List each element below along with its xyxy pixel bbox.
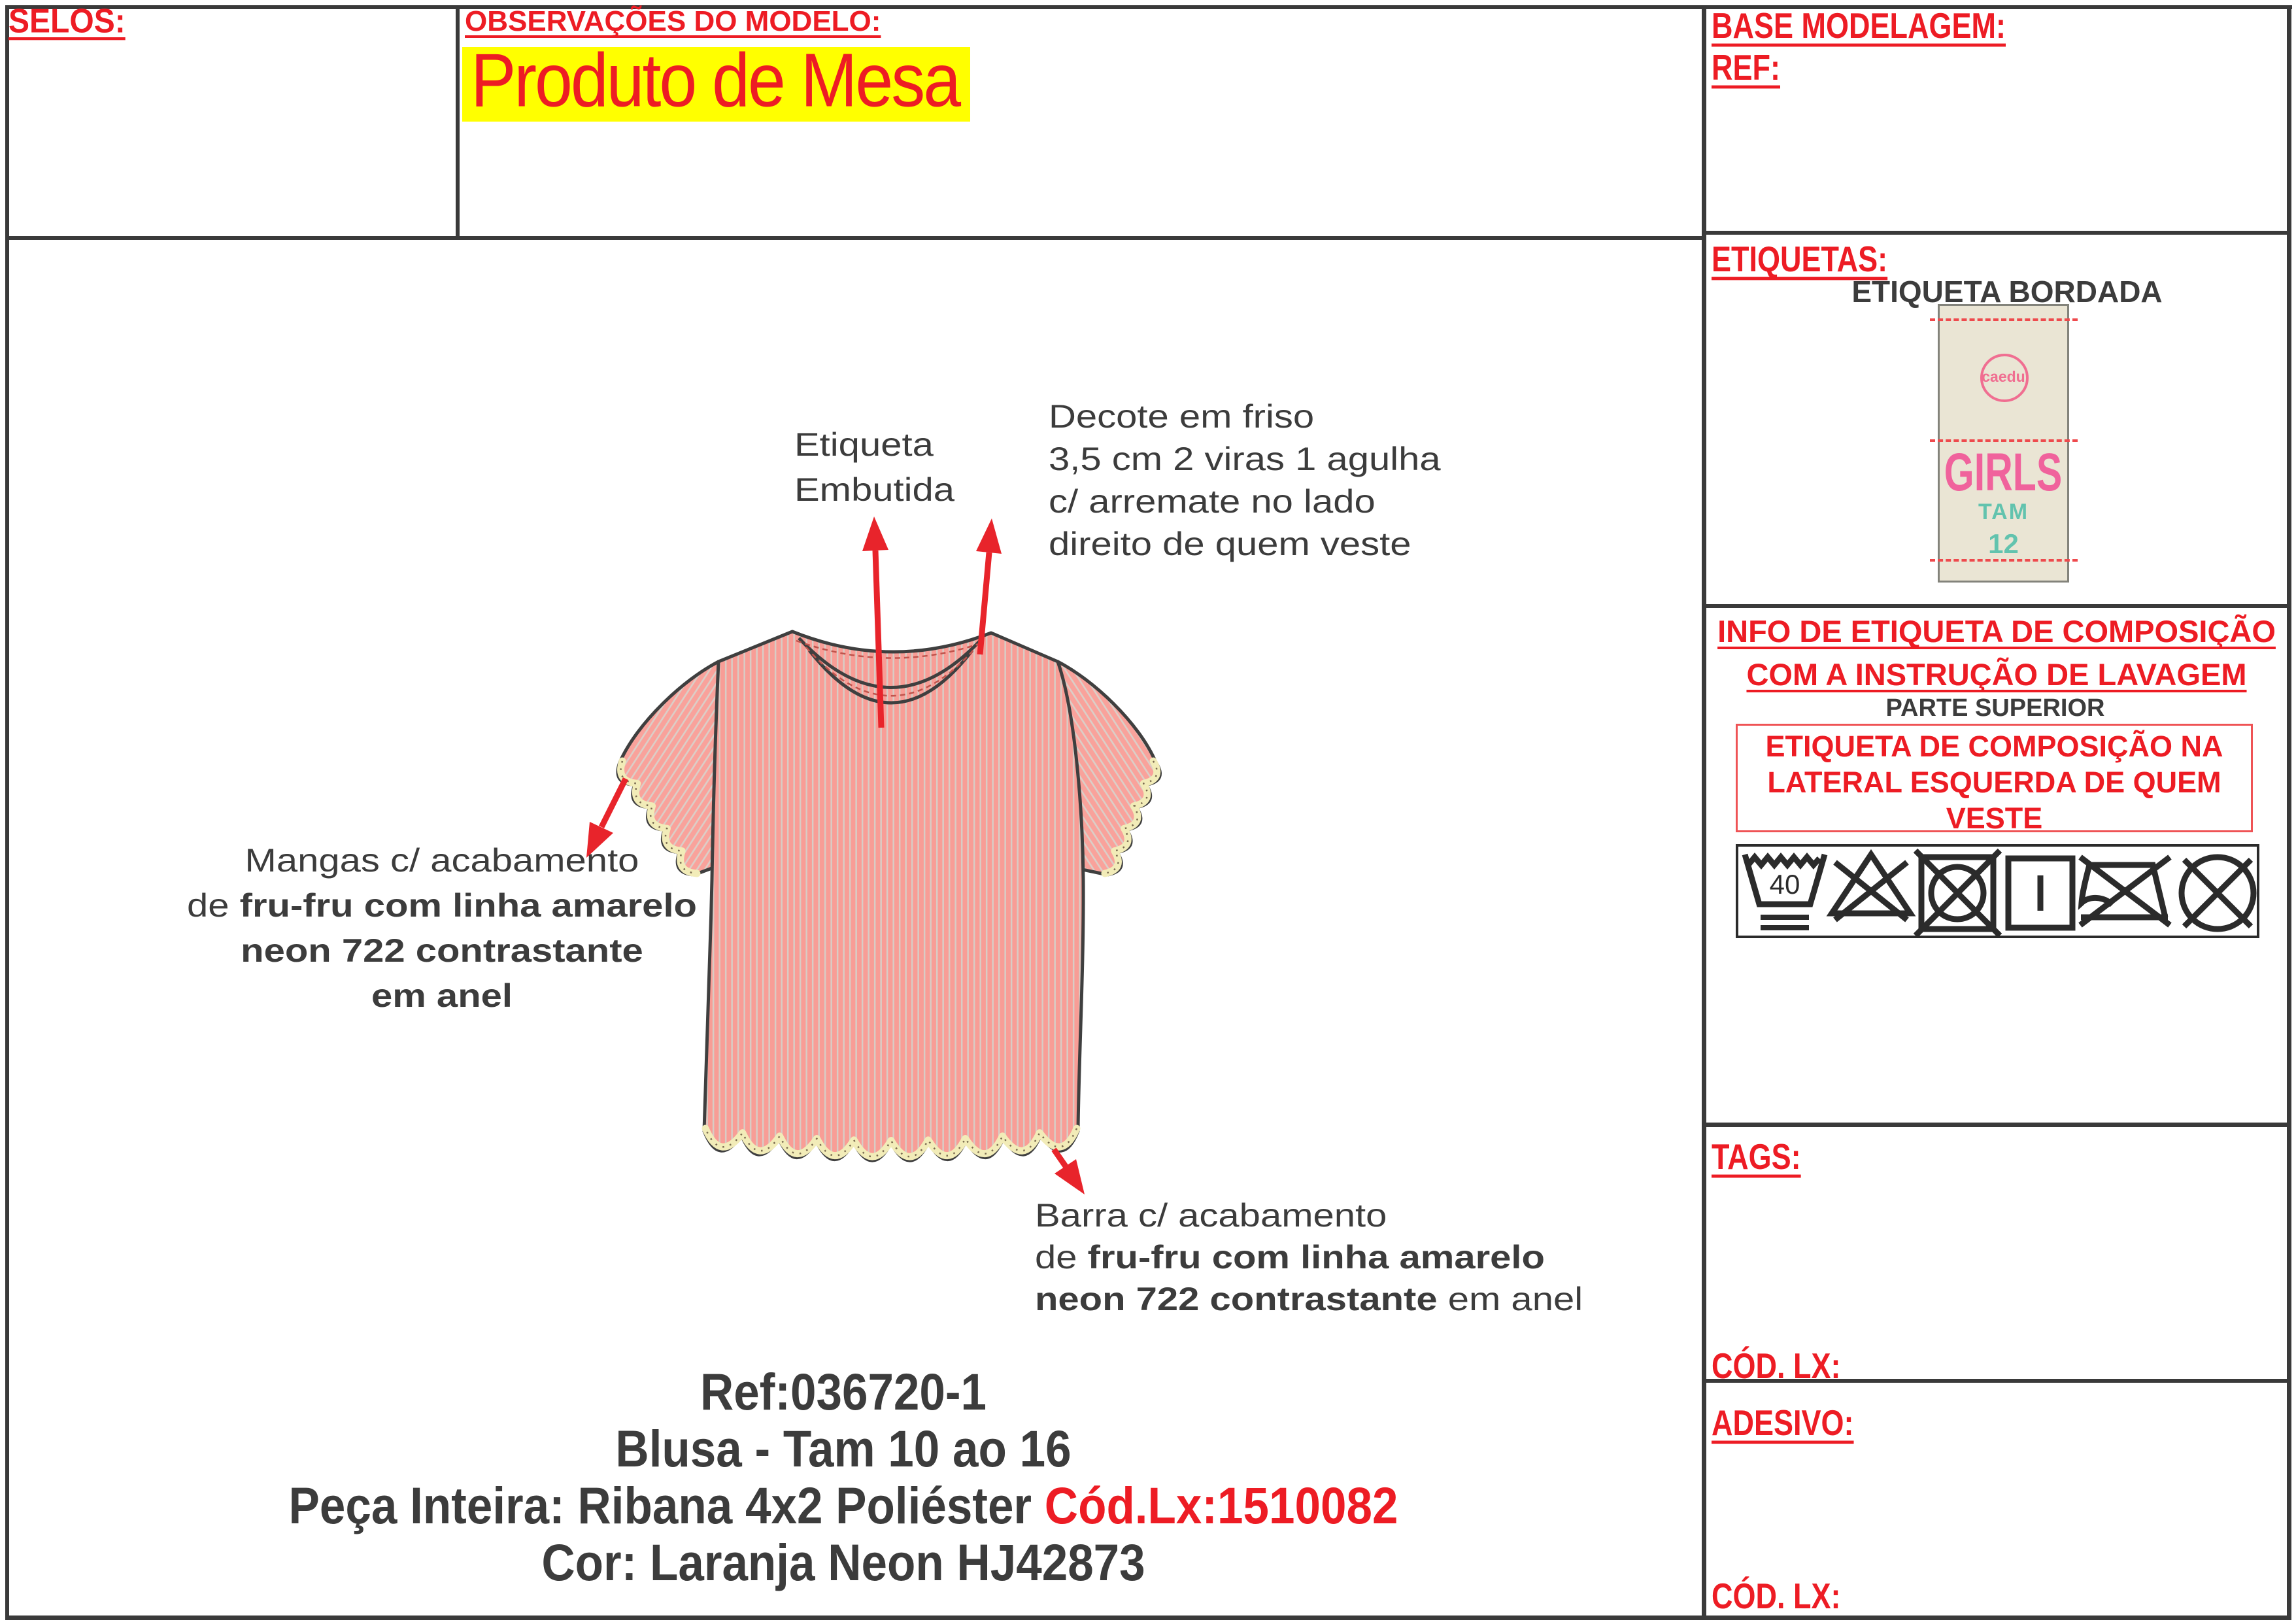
svg-text:40: 40 xyxy=(1770,869,1800,900)
